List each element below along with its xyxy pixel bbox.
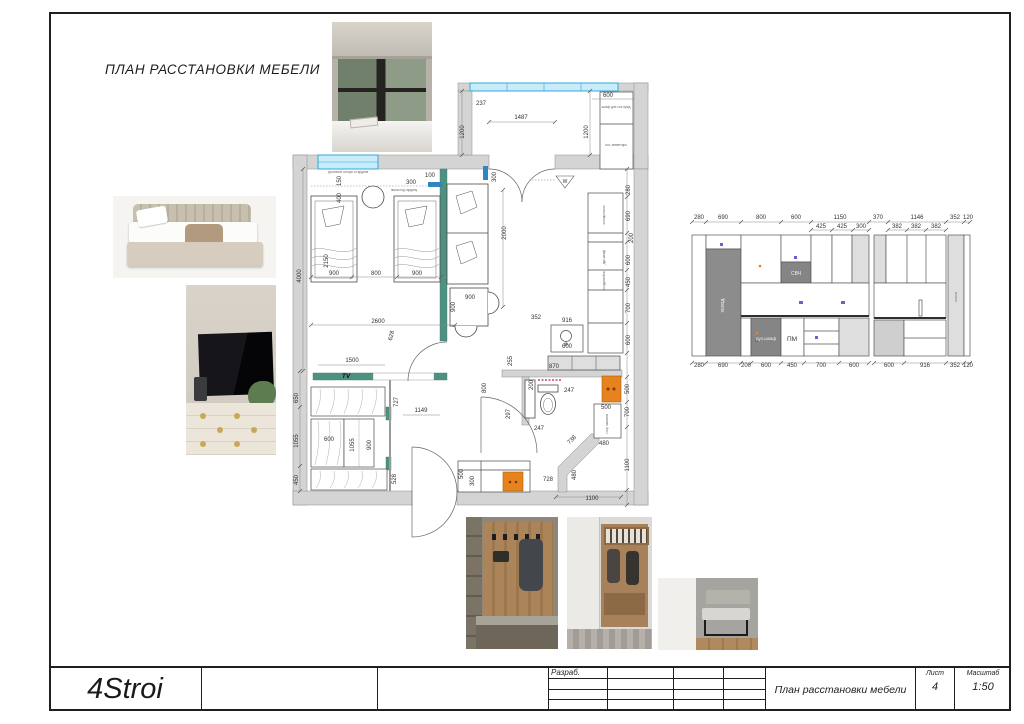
balcony-cabinet-label: шкаф для хоз.нужд	[602, 105, 631, 109]
dim: 690	[626, 210, 632, 221]
dim: 425	[816, 224, 827, 230]
dim: 1055	[294, 434, 300, 448]
dim: 2000	[502, 226, 508, 240]
niche-label: ниша	[953, 291, 958, 302]
dim: 600	[626, 334, 632, 345]
dim: 480	[599, 441, 610, 447]
washing-machine	[602, 376, 621, 402]
wall-marker	[483, 166, 488, 180]
dim: 600	[849, 363, 860, 369]
dim: 500	[459, 468, 465, 479]
titleblock-empty-cell	[202, 668, 378, 711]
entrance-door-arc	[412, 447, 457, 492]
balcony-cabinet-label: хоз. инвентарь	[605, 143, 627, 147]
pouf	[362, 186, 384, 208]
dim: 600	[626, 254, 632, 265]
dim: 800	[756, 215, 767, 221]
dim: 900	[465, 295, 476, 301]
dim: 450	[626, 276, 632, 287]
dim: 352	[950, 215, 961, 221]
dim: 1100	[586, 496, 600, 502]
drawing-layer: 237 1200 1487 600 1200 300 100 300 400 1…	[0, 0, 1024, 724]
dim: 690	[718, 215, 729, 221]
dim: 450	[787, 363, 798, 369]
entrance-door-arc	[412, 492, 457, 537]
dim: 1150	[834, 215, 848, 221]
vent-label: W	[563, 179, 568, 185]
dim: 237	[476, 101, 487, 107]
oven-label: дух.шкаф	[602, 249, 606, 264]
dim: 1149	[415, 408, 429, 414]
dim: 727	[394, 396, 400, 407]
scale-value: 1:50	[972, 681, 993, 693]
sheet-number-cell: Лист 4	[916, 668, 955, 711]
blind-label: рулонные шторы и гардина	[328, 170, 369, 174]
dim: 700	[816, 363, 827, 369]
elev-cabinets	[692, 235, 970, 356]
microwave-label: СВЧ	[791, 271, 801, 277]
balcony-cabinets	[600, 92, 633, 169]
dim: 1100	[625, 458, 631, 472]
dim: 600	[562, 344, 573, 350]
dim: 600	[324, 437, 335, 443]
chair	[455, 326, 477, 337]
dim: 200	[529, 379, 535, 390]
curtain-niche-label: ниша под гардину	[391, 188, 418, 192]
titleblock-signature-grid: Разраб.	[549, 668, 766, 711]
dim: 900	[367, 439, 373, 450]
sofa	[447, 184, 488, 284]
faucet	[919, 300, 922, 316]
drawing-sheet: ПЛАН РАССТАНОВКИ МЕБЕЛИ	[0, 0, 1024, 724]
dim: 200	[629, 232, 635, 243]
dim: 255	[508, 355, 514, 366]
dim: 480	[572, 469, 578, 480]
kitchen-elevation: 280 690 800 600 1150 370 1146 352 120 42…	[692, 215, 974, 369]
scale-label: Масштаб	[967, 670, 1000, 677]
floor-plan: 237 1200 1487 600 1200 300 100 300 400 1…	[293, 83, 648, 537]
dishwasher-label: ПМ	[787, 336, 797, 343]
dim: 352	[531, 315, 542, 321]
dim: 100	[425, 173, 436, 179]
dim: 150	[337, 175, 343, 186]
dim: 800	[482, 382, 488, 393]
dim: 300	[470, 475, 476, 486]
dim: 1200	[460, 125, 466, 139]
dim: 370	[873, 215, 884, 221]
dim: 900	[412, 271, 423, 277]
dim: 382	[911, 224, 922, 230]
oven-label: дух.шкаф	[756, 336, 777, 341]
dim: 2150	[324, 254, 330, 268]
dim: 600	[884, 363, 895, 369]
dim: 280	[626, 184, 632, 195]
beds	[311, 186, 440, 282]
dim: 120	[963, 363, 974, 369]
dim: 728	[543, 477, 554, 483]
dim: 1146	[911, 215, 925, 221]
dim: 247	[564, 388, 575, 394]
dim: 4000	[297, 269, 303, 283]
chair	[488, 292, 499, 314]
washer-label: стир. машина	[605, 414, 609, 434]
dim: 382	[892, 224, 903, 230]
dim: 1055	[350, 438, 356, 452]
dim: 916	[562, 318, 573, 324]
dim: 352	[950, 363, 961, 369]
dim: 300	[856, 224, 867, 230]
dim: 700	[626, 302, 632, 313]
dim: 300	[492, 171, 498, 182]
company-logo: 4Stroi	[49, 668, 202, 711]
fridge-label: холод.	[720, 297, 726, 312]
dim: 870	[549, 364, 560, 370]
tv-label: TV	[342, 373, 351, 380]
dim: 382	[931, 224, 942, 230]
dim: 280	[694, 363, 705, 369]
dim: 1487	[514, 115, 528, 121]
kitchen-cabinets	[551, 193, 623, 353]
dim: 2600	[371, 319, 385, 325]
window-mullions	[318, 83, 581, 162]
dim: 600	[761, 363, 772, 369]
vent-unit	[532, 176, 574, 188]
developed-label: Разраб.	[549, 668, 608, 679]
dim: 738	[567, 434, 579, 446]
dim: 450	[294, 474, 300, 485]
dim: 900	[451, 301, 457, 312]
drawing-name: План расстановки мебели	[766, 668, 916, 711]
dim: 500	[601, 405, 612, 411]
title-block: 4Stroi Разраб. План расстановки мебели Л…	[49, 666, 1011, 711]
sheet-label: Лист	[926, 670, 944, 677]
sheet-number: 4	[932, 681, 938, 693]
dim: 600	[603, 93, 614, 99]
tv-niche	[373, 373, 434, 380]
shoe-dryer	[503, 472, 523, 491]
dishwasher-label: посудомойка	[602, 271, 606, 290]
dim: 690	[718, 363, 729, 369]
scale-cell: Масштаб 1:50	[955, 668, 1011, 711]
dim: 800	[371, 271, 382, 277]
balcony-door-arc	[522, 169, 555, 202]
dim: 600	[791, 215, 802, 221]
dim: 400	[337, 192, 343, 203]
fridge-label: холодильник	[602, 205, 606, 225]
dim: 528	[392, 473, 398, 484]
dim: 425	[837, 224, 848, 230]
dim: 247	[534, 426, 545, 432]
dim: 1200	[584, 125, 590, 139]
dim: 280	[694, 215, 705, 221]
dim: 300	[406, 180, 417, 186]
toilet-tank	[538, 385, 558, 392]
titleblock-empty-cell	[378, 668, 549, 711]
dim: 900	[329, 271, 340, 277]
dim: 1500	[345, 358, 359, 364]
dim: 916	[920, 363, 931, 369]
dim: 500	[625, 383, 631, 394]
dim: 700	[625, 406, 631, 417]
dim: 628	[388, 329, 397, 341]
dim: 650	[294, 392, 300, 403]
dim: 297	[506, 408, 512, 419]
